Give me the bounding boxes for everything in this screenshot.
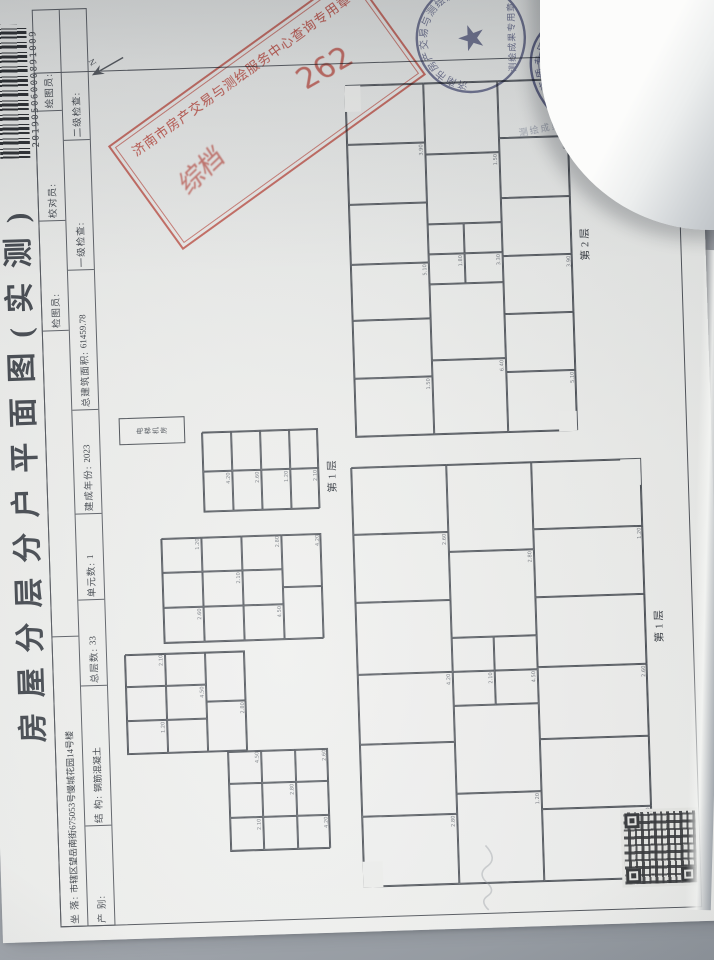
floor-caption-floor2: 第2层 bbox=[577, 225, 593, 261]
floor-plan-annex-d: 1.202.104.502.80 bbox=[124, 651, 247, 755]
room-cell: 4.50 bbox=[244, 604, 285, 640]
dimension-label: 6.40 bbox=[499, 360, 505, 372]
dimension-label: 2.60 bbox=[197, 609, 203, 621]
room-cell: 6.40 bbox=[432, 358, 508, 434]
dimension-label: 2.80 bbox=[274, 536, 280, 548]
room-cell: 2.60 bbox=[538, 664, 650, 739]
dimension-label: 2.60 bbox=[441, 534, 447, 546]
dimension-label: 5.10 bbox=[422, 264, 428, 276]
dimension-label: 1.50 bbox=[426, 378, 432, 390]
floor-plan-annex-b: 4.202.601.202.10 bbox=[201, 429, 319, 513]
room-cell: 4.50 bbox=[495, 669, 539, 704]
dimension-label: 5.10 bbox=[569, 372, 575, 384]
dimension-label: 2.80 bbox=[289, 784, 295, 796]
star-icon: ★ bbox=[453, 22, 491, 54]
dimension-label: 4.20 bbox=[314, 535, 320, 547]
room-cell bbox=[353, 318, 433, 378]
room-cell: 2.80 bbox=[207, 700, 249, 751]
room-cell: 2.60 bbox=[353, 532, 450, 603]
room-cell bbox=[296, 781, 330, 816]
qr-eye bbox=[626, 868, 641, 883]
dimension-label: 2.80 bbox=[450, 816, 456, 828]
dimension-label: 4.50 bbox=[531, 671, 537, 683]
room-cell: 4.20 bbox=[297, 815, 331, 849]
dimension-label: 1.20 bbox=[636, 528, 642, 540]
qr-eye bbox=[624, 813, 639, 828]
room-cell: 1.80 bbox=[429, 253, 466, 284]
room-cell: 5.10 bbox=[351, 262, 431, 320]
room-cell bbox=[430, 282, 506, 360]
dimension-label: 2.10 bbox=[312, 470, 318, 482]
room-cell bbox=[283, 586, 325, 639]
room-cell: 1.20 bbox=[161, 537, 202, 573]
room-cell bbox=[464, 222, 503, 253]
room-cell: 2.60 bbox=[232, 470, 262, 511]
outline-notch bbox=[559, 411, 578, 432]
dimension-label: 2.10 bbox=[236, 572, 242, 584]
room-cell bbox=[231, 430, 261, 471]
dimension-label: 1.80 bbox=[458, 255, 464, 267]
room-cell: 2.80 bbox=[449, 549, 537, 638]
room-cell bbox=[454, 703, 542, 794]
room-cell bbox=[205, 650, 247, 701]
room-cell: 4.20 bbox=[281, 533, 323, 587]
room-cell bbox=[162, 572, 203, 608]
room-cell bbox=[204, 605, 245, 641]
room-cell bbox=[260, 429, 290, 470]
room-cell: 2.60 bbox=[164, 607, 205, 643]
dimension-label: 2.60 bbox=[321, 750, 327, 762]
room-cell: 4.20 bbox=[358, 672, 455, 745]
room-cell bbox=[535, 594, 647, 667]
room-cell: 4.50 bbox=[166, 685, 207, 720]
dimension-label: 4.20 bbox=[446, 674, 452, 686]
room-cell bbox=[428, 223, 465, 254]
dimension-label: 1.50 bbox=[493, 154, 499, 166]
outline-notch bbox=[620, 459, 641, 486]
floor-caption-annex-b: 第1层 bbox=[324, 457, 340, 493]
room-cell bbox=[360, 742, 457, 817]
room-cell: 1.20 bbox=[457, 791, 545, 884]
red-stamp-number: 262 bbox=[289, 40, 360, 96]
room-cell: 1.20 bbox=[533, 526, 645, 597]
room-cell: 4.50 bbox=[228, 750, 262, 784]
dimension-label: 2.80 bbox=[527, 551, 533, 563]
dimension-label: 3.90 bbox=[566, 256, 572, 268]
room-cell bbox=[355, 600, 452, 675]
red-stamp-note: 综档 bbox=[171, 135, 229, 202]
dimension-label: 2.80 bbox=[240, 702, 246, 714]
room-cell: 2.80 bbox=[262, 782, 297, 817]
room-cell bbox=[501, 196, 573, 256]
room-cell bbox=[165, 652, 206, 686]
dimension-label: 1.20 bbox=[535, 793, 541, 805]
room-cell bbox=[261, 749, 296, 783]
room-cell: 2.10 bbox=[290, 468, 320, 509]
room-cell: 2.60 bbox=[295, 748, 329, 782]
room-cell: 1.50 bbox=[425, 152, 501, 224]
room-cell: 2.80 bbox=[241, 534, 282, 570]
dimension-label: 3.90 bbox=[418, 145, 424, 157]
room-cell bbox=[242, 569, 283, 605]
room-cell bbox=[494, 635, 538, 670]
document-photo: 房屋分层分户平面图(实测) 20190506000891009 坐 落:市辖区望… bbox=[0, 0, 714, 960]
dimension-label: 2.10 bbox=[158, 655, 164, 667]
room-cell: 2.10 bbox=[202, 570, 243, 606]
dimension-label: 4.20 bbox=[323, 817, 329, 829]
outline-notch bbox=[363, 861, 384, 888]
barcode bbox=[0, 24, 30, 159]
room-cell: 2.10 bbox=[230, 817, 264, 851]
dimension-label: 2.10 bbox=[488, 673, 494, 685]
dimension-label: 4.20 bbox=[225, 473, 231, 485]
floor-plan-shaft: 电梯机房 bbox=[119, 416, 186, 445]
dimension-label: 4.50 bbox=[199, 687, 205, 699]
room-cell: 1.20 bbox=[261, 469, 291, 510]
dimension-label: 1.20 bbox=[194, 539, 200, 551]
dimension-label: 1.20 bbox=[283, 471, 289, 483]
dimension-label: 2.60 bbox=[254, 472, 260, 484]
room-cell bbox=[201, 535, 242, 571]
room-cell bbox=[540, 736, 652, 809]
room-cell bbox=[229, 783, 263, 818]
room-cell bbox=[263, 816, 298, 850]
room-cell bbox=[452, 637, 495, 672]
room-cell bbox=[446, 461, 534, 552]
dimension-label: 2.60 bbox=[641, 666, 647, 678]
floor-plan-floor1: 2.804.202.601.202.104.502.804.202.601.20 bbox=[350, 459, 653, 888]
room-label: 电梯机房 bbox=[120, 417, 185, 444]
room-cell bbox=[351, 464, 448, 535]
room-cell: 2.10 bbox=[125, 653, 166, 687]
room-cell bbox=[126, 686, 167, 721]
room-cell: 3.30 bbox=[465, 252, 504, 283]
dimension-label: 4.50 bbox=[277, 606, 283, 618]
floor-caption-floor1: 第1层 bbox=[651, 607, 667, 643]
room-cell: 6.40 bbox=[499, 136, 571, 198]
room-cell: 1.50 bbox=[354, 376, 434, 436]
room-cell: 2.10 bbox=[453, 671, 496, 706]
dimension-label: 3.30 bbox=[496, 254, 502, 266]
floor-plan-annex-e: 2.104.502.804.202.60 bbox=[227, 749, 330, 852]
room-cell bbox=[167, 719, 208, 753]
room-cell bbox=[504, 312, 576, 372]
dimension-label: 4.50 bbox=[254, 752, 260, 764]
dimension-label: 1.20 bbox=[160, 722, 166, 734]
room-cell bbox=[289, 428, 319, 469]
dimension-label: 2.10 bbox=[256, 819, 262, 831]
room-cell bbox=[202, 431, 232, 472]
floor-plan-annex-c: 2.601.202.104.502.804.20 bbox=[160, 534, 323, 644]
room-cell: 3.90 bbox=[347, 142, 427, 204]
room-cell bbox=[349, 202, 429, 264]
room-cell: 4.20 bbox=[203, 471, 233, 512]
room-cell: 3.90 bbox=[503, 254, 575, 314]
room-cell: 1.20 bbox=[127, 720, 168, 754]
